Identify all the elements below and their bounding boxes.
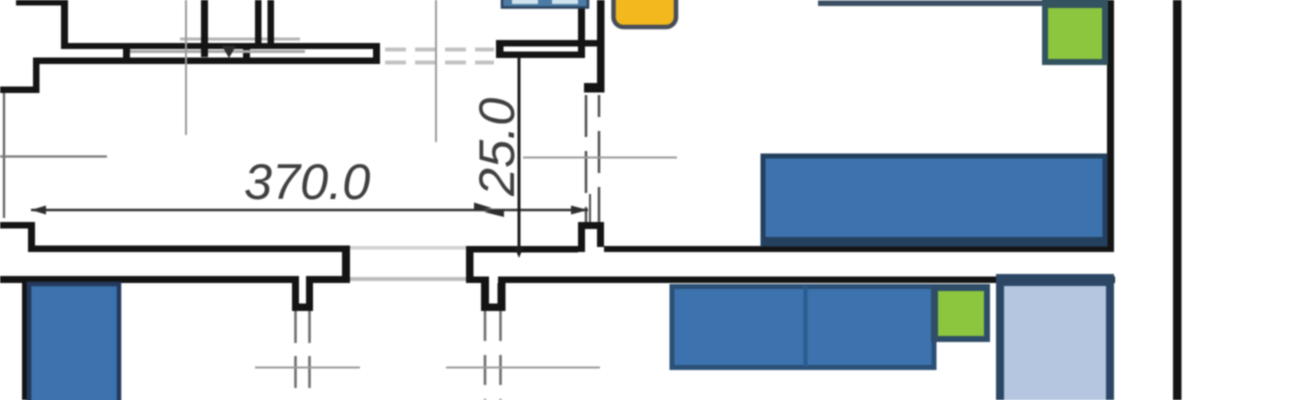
svg-text:25.0: 25.0 bbox=[468, 98, 525, 197]
svg-text:370.0: 370.0 bbox=[244, 153, 370, 210]
